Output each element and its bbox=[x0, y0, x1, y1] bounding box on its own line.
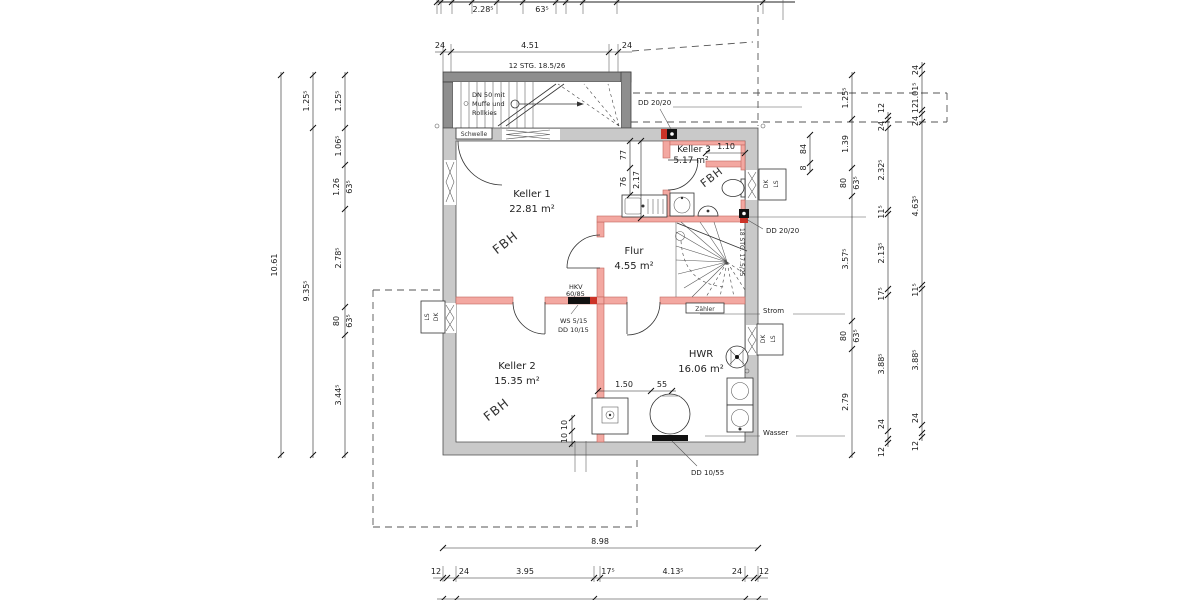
zaehler-label: Zähler bbox=[695, 306, 715, 313]
urinal-dot bbox=[707, 210, 710, 213]
dim-label: 2.13⁵ bbox=[877, 242, 886, 263]
fbh-label-keller2: FBH bbox=[481, 395, 512, 424]
window-label-ls: LS bbox=[424, 313, 431, 320]
stair-wall-right bbox=[621, 72, 631, 128]
schwelle-label: Schwelle bbox=[461, 131, 488, 138]
dim-label: 2.28⁵ bbox=[472, 5, 493, 14]
hkv-value: 60/85 bbox=[566, 290, 585, 298]
dim-label: 17⁵ bbox=[877, 287, 886, 300]
dim-label: 1.25⁵ bbox=[841, 87, 850, 108]
dim-label: 10 bbox=[560, 433, 569, 443]
pump-center-dot bbox=[735, 355, 739, 359]
washbasin-tap-icon bbox=[681, 197, 683, 199]
dd-red-marker bbox=[740, 218, 748, 223]
dim-label: 2.79 bbox=[841, 393, 850, 411]
dim-label: 24 bbox=[877, 419, 886, 429]
dim-label: 8.98 bbox=[591, 537, 609, 546]
dim-label: 24 bbox=[911, 413, 920, 423]
dim-slashes bbox=[440, 596, 761, 600]
dim-label: 24 bbox=[732, 567, 742, 576]
wall-keller3-left-upper bbox=[663, 141, 670, 158]
dim-label: 12 bbox=[877, 447, 886, 457]
boiler-tank bbox=[650, 394, 690, 434]
wall-wc-row bbox=[597, 216, 745, 222]
basement-floorplan-drawing: 12 STG. 18.5/26 DN 50 mit Muffe und Roll… bbox=[0, 0, 1200, 600]
dim-label: 55 bbox=[657, 380, 667, 389]
dd2020-top-leader bbox=[660, 109, 671, 129]
wall-strip-right bbox=[741, 145, 745, 170]
dim-label: 12 bbox=[911, 441, 920, 451]
window-label-dk: DK bbox=[433, 312, 440, 322]
dim-label: 12 bbox=[759, 567, 769, 576]
floorplan-canvas: 12 STG. 18.5/26 DN 50 mit Muffe und Roll… bbox=[0, 0, 1200, 600]
dim-label: 3.44⁵ bbox=[334, 384, 343, 405]
dim-label: 11⁵ bbox=[877, 205, 886, 218]
entry-door-swing bbox=[458, 141, 502, 185]
dim-label: 76 bbox=[619, 177, 628, 187]
wall-keller3-wc-stub bbox=[706, 161, 745, 167]
corner-marker-icon bbox=[761, 124, 765, 128]
water-tank-dot bbox=[739, 428, 742, 431]
dim-label: 12 bbox=[877, 103, 886, 113]
strom-label: Strom bbox=[763, 307, 784, 315]
dim-label: 2.32⁵ bbox=[877, 159, 886, 180]
dd-red-marker bbox=[661, 129, 667, 139]
room-name-flur: Flur bbox=[625, 246, 645, 257]
room-area-keller1: 22.81 m² bbox=[509, 204, 555, 215]
wall-flur-hwr bbox=[604, 297, 627, 304]
room-area-hwr: 16.06 m² bbox=[678, 364, 724, 375]
wall-keller1-keller2 bbox=[456, 297, 513, 304]
washing-machine-dot bbox=[609, 414, 611, 416]
window-gap bbox=[746, 325, 757, 355]
hkv-red-icon bbox=[590, 297, 597, 304]
dd2020-right-label: DD 20/20 bbox=[766, 227, 799, 235]
dim-label: 3.57⁵ bbox=[841, 248, 850, 269]
dim-label: 63⁵ bbox=[345, 314, 354, 327]
dim-label: 24 bbox=[435, 41, 445, 50]
dim-label: 8 bbox=[799, 165, 808, 170]
dims-bottom: 8.98 12 24 3.95 17⁵ 4.13⁵ 24 12 bbox=[431, 537, 769, 600]
stair-wall-top bbox=[443, 72, 631, 82]
dn50-note-line3: Rollkies bbox=[472, 109, 497, 117]
stair-wall-left bbox=[443, 82, 453, 128]
dim-label: 24 bbox=[911, 116, 920, 126]
dd-duct-dot bbox=[742, 212, 746, 216]
dd-duct-dot bbox=[670, 132, 674, 136]
dim-label: 2.78⁵ bbox=[334, 247, 343, 268]
dim-label: 84 bbox=[799, 144, 808, 154]
dim-label: 12 bbox=[431, 567, 441, 576]
room-area-flur: 4.55 m² bbox=[614, 261, 653, 272]
dim-label: 1.50 bbox=[615, 380, 633, 389]
window-gap bbox=[444, 160, 456, 205]
wasser-label: Wasser bbox=[763, 429, 788, 437]
dim-label: 1.26 bbox=[332, 178, 341, 196]
dn50-note-line1: DN 50 mit bbox=[472, 91, 505, 99]
dd1055-label: DD 10/55 bbox=[691, 469, 724, 477]
window-label-dk: DK bbox=[763, 179, 770, 189]
hkv-bar-icon bbox=[568, 297, 590, 304]
dd-floor-duct-icon bbox=[652, 435, 688, 441]
room-area-keller2: 15.35 m² bbox=[494, 376, 540, 387]
ws-label: WS 5/15 bbox=[560, 317, 587, 325]
faucet-icon bbox=[642, 205, 645, 208]
hwr-door bbox=[627, 302, 660, 335]
dim-label: 24 bbox=[911, 65, 920, 75]
dim-label: 10.61 bbox=[270, 254, 279, 277]
dim-label: 9.35⁵ bbox=[302, 280, 311, 301]
canopy-outline-dashed bbox=[631, 93, 947, 122]
wall-flur-lower bbox=[597, 268, 604, 297]
leader-dashed bbox=[632, 42, 753, 51]
stair-inner-label: 18 STG. 17.5/25 bbox=[738, 228, 745, 277]
dim-label: 1.01⁵ bbox=[911, 82, 920, 103]
dim-label: 3.95 bbox=[516, 567, 534, 576]
keller2-door bbox=[513, 302, 545, 334]
dim-label: 1.39 bbox=[841, 135, 850, 153]
dim-label: 4.51 bbox=[521, 41, 539, 50]
window-gap bbox=[746, 170, 757, 200]
room-name-hwr: HWR bbox=[689, 349, 713, 360]
dim-label: 3.88⁵ bbox=[877, 353, 886, 374]
dim-label: 1.10 bbox=[717, 142, 735, 151]
keller1-flur-door bbox=[567, 235, 600, 268]
dim-label: 63⁵ bbox=[535, 5, 548, 14]
dims-right: 1.25⁵ 1.39 80 63⁵ 3.57⁵ 80 63⁵ 2.79 12 2… bbox=[799, 62, 925, 458]
dims-top: 2.28⁵ 63⁵ 24 4.51 24 bbox=[434, 0, 795, 72]
washbasin bbox=[670, 193, 694, 216]
dim-label: 80 bbox=[332, 316, 341, 326]
stair-top-label: 12 STG. 18.5/26 bbox=[509, 62, 566, 70]
dim-label: 1.25⁵ bbox=[334, 90, 343, 111]
dim-label: 63⁵ bbox=[852, 329, 861, 342]
fbh-label-keller1: FBH bbox=[490, 228, 521, 257]
exterior-stair: 12 STG. 18.5/26 DN 50 mit Muffe und Roll… bbox=[435, 62, 765, 128]
window-label-ls: LS bbox=[770, 335, 777, 342]
dim-label: 24 bbox=[459, 567, 469, 576]
room-name-keller2: Keller 2 bbox=[498, 361, 536, 372]
window-label-ls: LS bbox=[773, 180, 780, 187]
dn50-note-line2: Muffe und bbox=[472, 100, 505, 108]
window-label-dk: DK bbox=[760, 334, 767, 344]
dim-label: 4.13⁵ bbox=[662, 567, 683, 576]
dim-label: 63⁵ bbox=[345, 180, 354, 193]
dim-label: 11⁵ bbox=[911, 283, 920, 296]
dd1015-label: DD 10/15 bbox=[558, 326, 589, 334]
dim-label: 80 bbox=[839, 178, 848, 188]
dims-interior: 77 76 2.17 1.10 1.50 55 10 10 bbox=[560, 138, 748, 447]
water-tank bbox=[727, 378, 753, 405]
dd2020-top-label: DD 20/20 bbox=[638, 99, 671, 107]
fbh-label-keller3: FBH bbox=[698, 164, 726, 190]
dim-label: 17⁵ bbox=[601, 567, 614, 576]
room-name-keller1: Keller 1 bbox=[513, 189, 551, 200]
dim-label: 1.06⁵ bbox=[334, 135, 343, 156]
dim-label: 77 bbox=[619, 150, 628, 160]
dim-label: 80 bbox=[839, 331, 848, 341]
room-area-keller3: 5.17 m² bbox=[673, 156, 709, 166]
doors bbox=[458, 141, 698, 335]
dim-label: 10 bbox=[560, 420, 569, 430]
corner-marker-icon bbox=[435, 124, 439, 128]
toilet-bowl bbox=[722, 180, 744, 197]
dim-label: 2.17 bbox=[632, 171, 641, 189]
dim-label: 12 bbox=[911, 103, 920, 113]
dim-label: 63⁵ bbox=[852, 176, 861, 189]
dim-label: 24 bbox=[622, 41, 632, 50]
interior-stair: 18 STG. 17.5/25 bbox=[676, 222, 748, 297]
ws-leader bbox=[571, 305, 578, 314]
dim-label: 24 bbox=[877, 121, 886, 131]
dims-left: 10.61 1.25⁵ 9.35⁵ 1.25⁵ 1.06⁵ 1.26 63⁵ 2… bbox=[270, 72, 354, 458]
stair-cut-line bbox=[677, 223, 747, 251]
dim-label: 3.88⁵ bbox=[911, 349, 920, 370]
dim-label: 4.63⁵ bbox=[911, 195, 920, 216]
dim-label: 1.25⁵ bbox=[302, 90, 311, 111]
